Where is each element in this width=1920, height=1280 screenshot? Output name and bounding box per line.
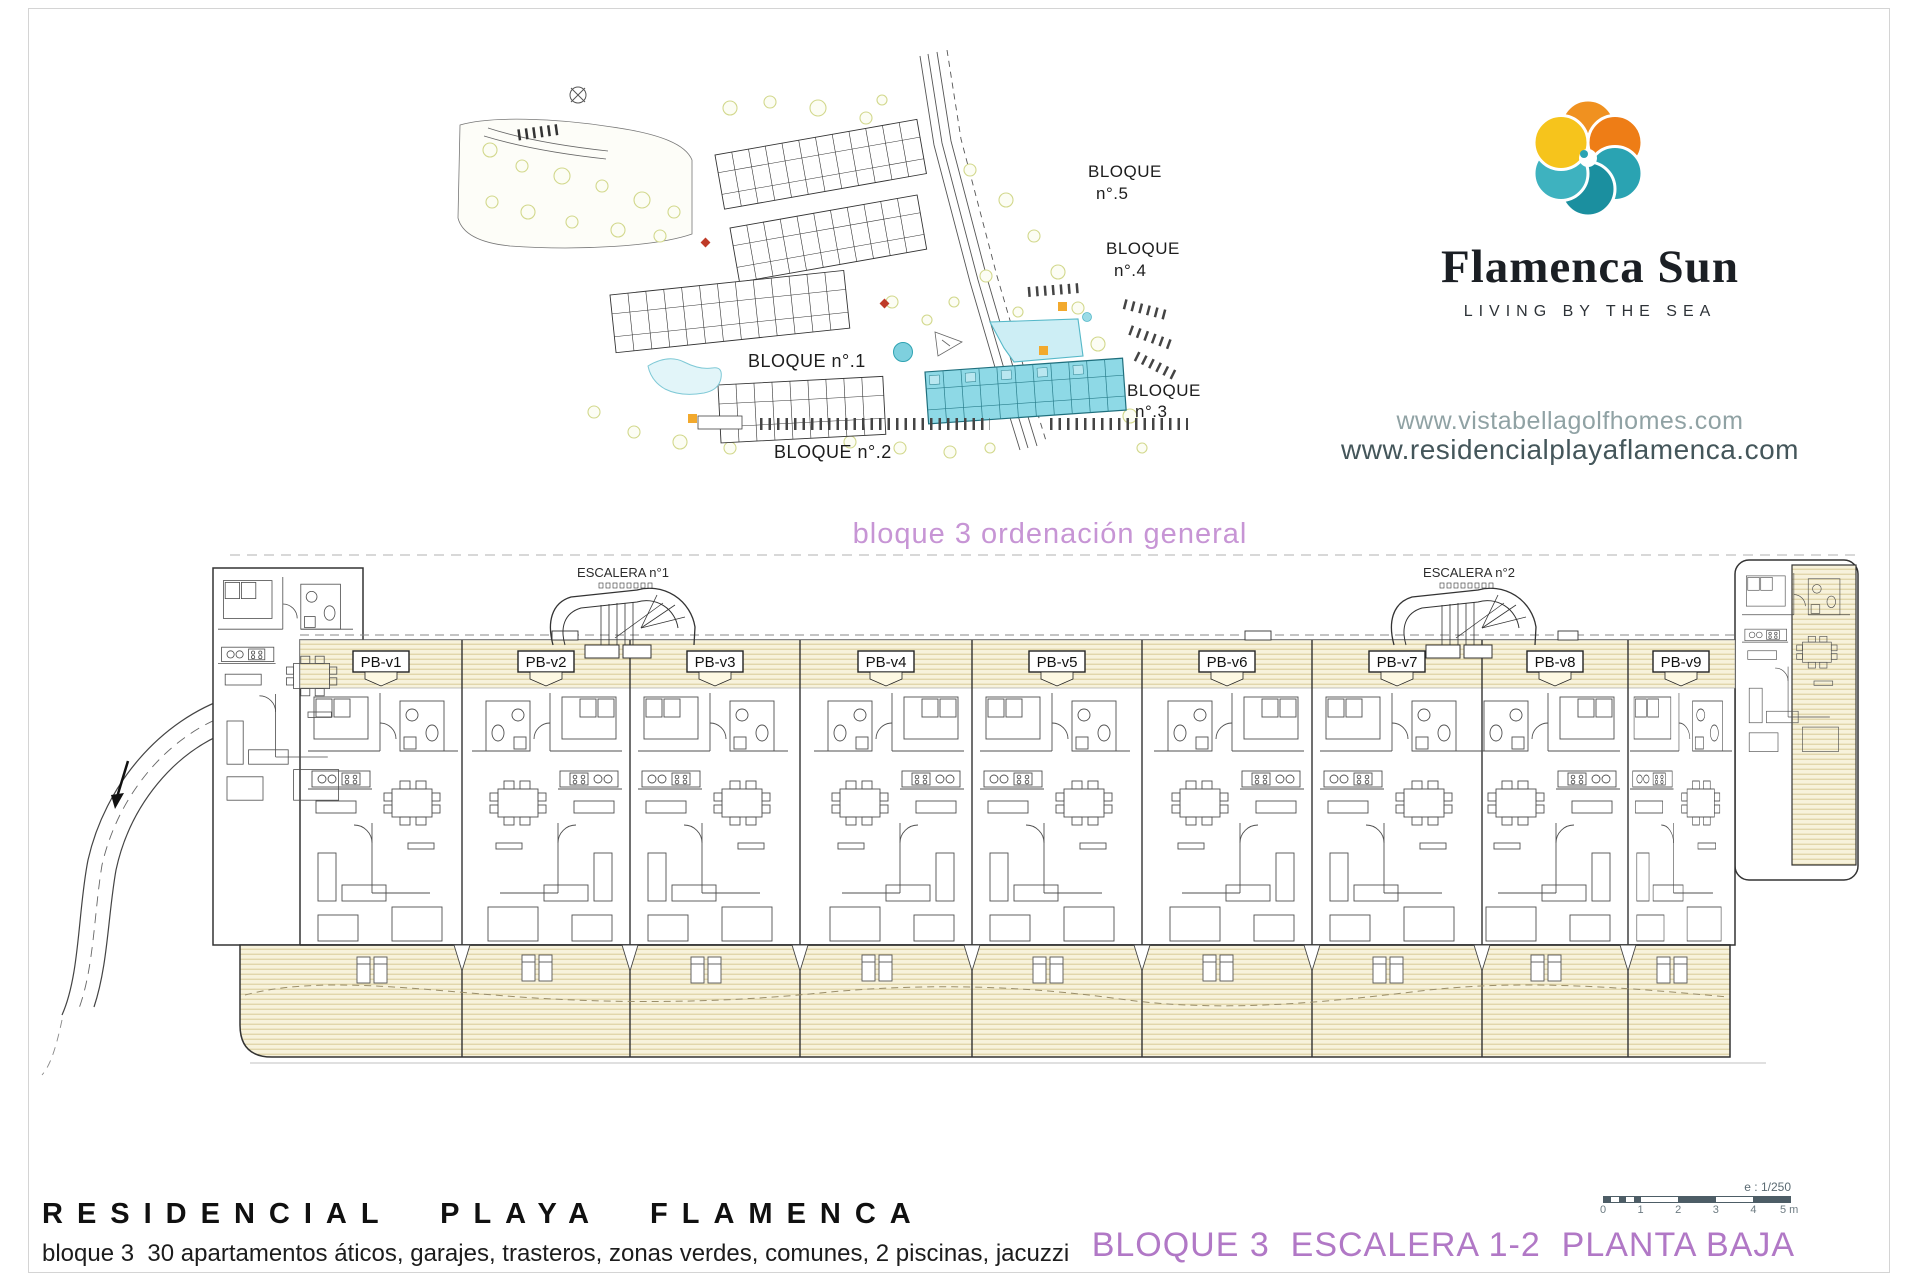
jacuzzi — [1083, 313, 1092, 322]
main-pool — [990, 319, 1083, 362]
bloque-1-building — [610, 270, 850, 352]
website-url-2: www.residencialplayaflamenca.com — [1190, 434, 1920, 466]
bloque-1-label: BLOQUE n°.1 — [748, 351, 866, 371]
scale-ticks: 0 1 2 3 4 5 m — [1603, 1203, 1791, 1217]
svg-text:PB-v9: PB-v9 — [1661, 654, 1702, 671]
scale-bar: e : 1/250 0 1 2 3 4 5 m — [1603, 1180, 1791, 1217]
bloque-2-building — [718, 376, 886, 443]
site-plan: BLOQUEn°.5 BLOQUEn°.4 BLOQUEn°.3 BLOQUE … — [430, 50, 1210, 480]
svg-text:PB-v4: PB-v4 — [866, 654, 907, 671]
svg-text:PB-v5: PB-v5 — [1037, 654, 1078, 671]
scale-tick: 1 — [1638, 1204, 1644, 1216]
playground — [935, 332, 962, 356]
svg-text:PB-v7: PB-v7 — [1377, 654, 1418, 671]
north-symbol-icon — [570, 87, 586, 103]
scale-ratio-label: e : 1/250 — [1603, 1180, 1791, 1194]
project-subtitle: bloque 3 30 apartamentos áticos, garajes… — [42, 1240, 1069, 1268]
road-arrow-icon — [111, 761, 128, 809]
scale-tick: 5 m — [1780, 1204, 1798, 1216]
round-pool — [894, 343, 913, 362]
bloque-4-label: BLOQUEn°.4 — [1106, 239, 1180, 280]
svg-text:PB-v3: PB-v3 — [695, 654, 736, 671]
floor-plan: ESCALERA n°1 ESCALERA n°2 PB-v1 PB-v2 PB… — [0, 455, 1920, 1080]
scale-tick: 0 — [1600, 1204, 1606, 1216]
scale-tick: 3 — [1713, 1204, 1719, 1216]
bloque-3-building-highlighted — [925, 358, 1126, 424]
svg-text:PB-v2: PB-v2 — [526, 654, 567, 671]
bloque-5-label: BLOQUEn°.5 — [1088, 162, 1162, 203]
plan-sheet: BLOQUEn°.5 BLOQUEn°.4 BLOQUEn°.3 BLOQUE … — [0, 0, 1920, 1280]
flamenca-sun-logo-icon — [1513, 85, 1663, 235]
escalera-2-label: ESCALERA n°2 — [1423, 565, 1515, 580]
top-terrace-band — [300, 640, 1735, 688]
escalera-1-label: ESCALERA n°1 — [577, 565, 669, 580]
sheet-title: BLOQUE 3 ESCALERA 1-2 PLANTA BAJA — [1092, 1226, 1795, 1265]
bloque-5-building — [715, 119, 926, 209]
svg-text:PB-v8: PB-v8 — [1535, 654, 1576, 671]
scale-tick: 4 — [1750, 1204, 1756, 1216]
access-road — [42, 697, 230, 1075]
scale-tick: 2 — [1675, 1204, 1681, 1216]
svg-text:PB-v1: PB-v1 — [361, 654, 402, 671]
scale-bar-graphic — [1603, 1196, 1791, 1203]
project-title: RESIDENCIAL PLAYA FLAMENCA — [42, 1198, 925, 1231]
pool-bloque2 — [648, 359, 721, 395]
svg-text:PB-v6: PB-v6 — [1207, 654, 1248, 671]
website-url-1: www.vistabellagolfhomes.com — [1190, 407, 1920, 436]
bloque-4-building — [730, 195, 927, 282]
brand-tagline: LIVING BY THE SEA — [1390, 303, 1790, 321]
brand-name: Flamenca Sun — [1390, 240, 1790, 294]
